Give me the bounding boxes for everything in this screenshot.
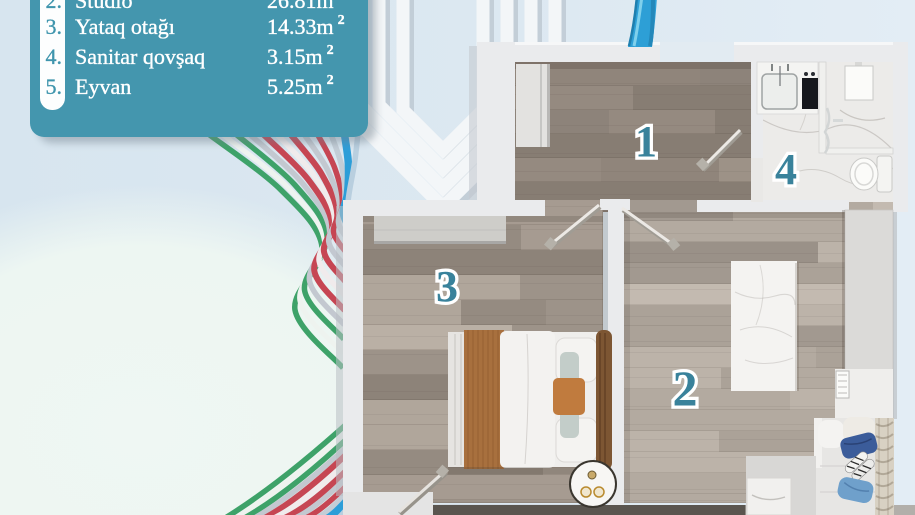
svg-text:5.: 5.: [46, 74, 63, 99]
svg-text:14.33m2: 14.33m2: [267, 13, 345, 39]
svg-text:Sanitar qovşaq: Sanitar qovşaq: [75, 44, 205, 69]
svg-text:26.81m2: 26.81m2: [267, 0, 345, 13]
svg-text:Studio: Studio: [75, 0, 132, 13]
svg-text:4.: 4.: [46, 44, 63, 69]
svg-text:2: 2: [673, 360, 698, 416]
svg-text:3: 3: [436, 262, 458, 311]
svg-text:1: 1: [635, 117, 657, 166]
svg-text:Yataq otağı: Yataq otağı: [75, 14, 175, 39]
svg-text:2.: 2.: [46, 0, 63, 13]
svg-text:4: 4: [775, 145, 797, 194]
svg-text:Eyvan: Eyvan: [75, 74, 131, 99]
svg-text:3.: 3.: [46, 14, 63, 39]
